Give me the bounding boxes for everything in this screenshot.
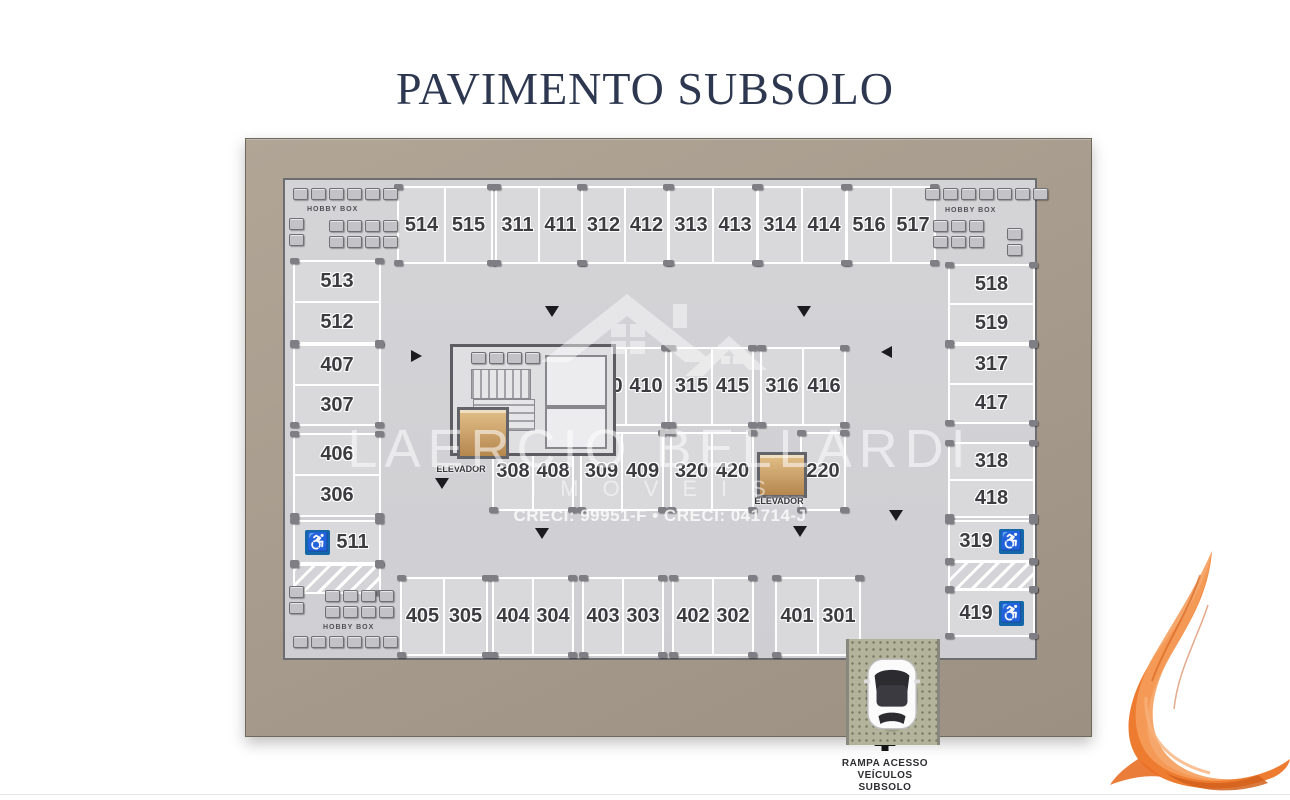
hobby-box-tags [329, 236, 398, 248]
stall-number: 405 [406, 605, 439, 628]
parking-stall: 314 [759, 188, 801, 262]
parking-stall: 405 [402, 579, 443, 654]
parking-stall: 513 [295, 262, 379, 301]
stall-number: 315 [675, 375, 708, 398]
parking-stall: 409 [621, 434, 662, 509]
parking-stall: 416 [802, 349, 844, 424]
stall-number: 514 [405, 214, 438, 237]
stall-number: 407 [320, 354, 353, 377]
stall-number: 302 [716, 605, 749, 628]
elevator-cab [757, 452, 807, 498]
parking-stall: 512 [295, 301, 379, 342]
parking-pair: 518 519 [948, 264, 1035, 344]
stair-landing [471, 369, 531, 399]
direction-arrow-icon [881, 346, 892, 358]
parking-stall: 313 [670, 188, 712, 262]
background-edge-line [0, 794, 1290, 795]
stall-number: 318 [975, 450, 1008, 473]
parking-pair: 316 416 [760, 347, 846, 426]
wheelchair-icon: ♿ [999, 529, 1024, 554]
parking-pair: 313 413 [668, 186, 758, 264]
parking-pair: 318 418 [948, 442, 1035, 518]
stall-number: 406 [320, 443, 353, 466]
stall-number: 408 [536, 460, 569, 483]
stall-number: 419 [959, 602, 992, 625]
parking-pair: 404 304 [492, 577, 574, 656]
direction-arrow-icon [797, 306, 811, 317]
stall-number: 418 [975, 487, 1008, 510]
direction-arrow-icon [793, 526, 807, 537]
stall-number: 411 [544, 214, 576, 237]
stall-number: 305 [449, 605, 482, 628]
hobby-box-tags [293, 188, 398, 200]
parking-stall: 406 [295, 435, 379, 474]
stall-number: 307 [320, 394, 353, 417]
parking-stall: 316 [762, 349, 802, 424]
ramp-caption-line: VEÍCULOS [815, 770, 955, 782]
stall-number: 314 [763, 214, 796, 237]
stall-number: 416 [807, 375, 840, 398]
stall-number: 312 [587, 214, 620, 237]
parking-stall: 304 [532, 579, 572, 654]
parking-stall: 315 [672, 349, 711, 424]
stall-number: 417 [975, 392, 1008, 415]
page: PAVIMENTO SUBSOLO 514 515 311 411 312 41… [0, 0, 1290, 800]
parking-stall: 403 [584, 579, 622, 654]
parking-stall: 303 [622, 579, 662, 654]
plan-interior: 514 515 311 411 312 412 313 413 314 414 … [283, 178, 1037, 660]
hobby-box-tags [289, 218, 304, 246]
stall-number: 415 [716, 375, 749, 398]
stall-number: 404 [496, 605, 529, 628]
wheelchair-icon: ♿ [999, 601, 1024, 626]
parking-stall: 516 [848, 188, 890, 262]
parking-stall: 312 [583, 188, 624, 262]
hobby-box-tags [925, 188, 1048, 200]
hobby-box-tags [329, 220, 398, 232]
hobby-box-tags [289, 586, 304, 614]
hobby-box-label: HOBBY BOX [945, 207, 996, 214]
parking-pair: 315 415 [670, 347, 754, 426]
direction-arrow-icon [411, 350, 422, 362]
stall-number: 513 [320, 270, 353, 293]
hobby-box-label: HOBBY BOX [307, 206, 358, 213]
parking-stall: 307 [295, 384, 379, 424]
stall-number: 414 [807, 214, 840, 237]
parking-stall: 311 [497, 188, 538, 262]
parking-stall: 410 [625, 349, 665, 424]
vehicle-ramp [846, 639, 940, 745]
stall-number: 220 [806, 460, 839, 483]
parking-stall: 519 [950, 303, 1033, 342]
stall-number: 409 [626, 460, 659, 483]
elevator-label: ELEVADOR [737, 496, 821, 506]
parking-pair: 403 303 [582, 577, 664, 656]
ramp-caption-line: SUBSOLO [815, 782, 955, 794]
parking-stall: 302 [712, 579, 752, 654]
ramp-caption: RAMPA ACESSO VEÍCULOS SUBSOLO [815, 737, 955, 794]
ramp-caption-line: RAMPA ACESSO [815, 758, 955, 770]
accessible-parking-stall: 419 ♿ [948, 589, 1035, 637]
parking-stall: 320 [672, 434, 711, 509]
elevator-cab [457, 407, 509, 459]
stall-number: 311 [501, 214, 533, 237]
parking-stall: 404 [494, 579, 532, 654]
orange-swoosh-decoration [1108, 545, 1290, 797]
parking-stall: 306 [295, 474, 379, 515]
parking-stall: 317 [950, 346, 1033, 383]
stall-number: 306 [320, 484, 353, 507]
stall-number: 309 [585, 460, 618, 483]
parking-stall: 318 [950, 444, 1033, 479]
stall-number: 402 [676, 605, 709, 628]
stall-number: 515 [452, 214, 485, 237]
parking-stall: 412 [624, 188, 667, 262]
parking-stall: 411 [538, 188, 581, 262]
parking-pair: 406 306 [293, 433, 381, 517]
direction-arrow-icon [535, 528, 549, 539]
parking-stall: 418 [950, 479, 1033, 516]
parking-stall: 415 [711, 349, 752, 424]
hobby-box-label: HOBBY BOX [323, 624, 374, 631]
stall-number: 512 [320, 311, 353, 334]
parking-stall: 305 [443, 579, 486, 654]
parking-stall: 417 [950, 383, 1033, 422]
car-top-view [863, 655, 921, 733]
direction-arrow-icon [435, 478, 449, 489]
machine-room [545, 355, 607, 407]
parking-pair: 514 515 [397, 186, 493, 264]
floor-plan: 514 515 311 411 312 412 313 413 314 414 … [245, 138, 1092, 737]
stall-number: 316 [765, 375, 798, 398]
stall-number: 320 [675, 460, 708, 483]
parking-stall: 414 [801, 188, 845, 262]
stall-number: 420 [716, 460, 749, 483]
stall-number: 412 [630, 214, 663, 237]
stall-number: 303 [626, 605, 659, 628]
parking-pair: 516 517 [846, 186, 936, 264]
hobby-box-tags [325, 606, 394, 618]
stall-number: 313 [674, 214, 707, 237]
no-parking-hatch [948, 561, 1035, 590]
parking-pair: 311 411 [495, 186, 583, 264]
parking-stall: 514 [399, 188, 444, 262]
stall-number: 401 [780, 605, 813, 628]
stall-number: 317 [975, 353, 1008, 376]
stall-number: 410 [629, 375, 662, 398]
stall-number: 319 [959, 530, 992, 553]
accessible-parking-stall: ♿ 511 [293, 520, 381, 564]
parking-pair: 314 414 [757, 186, 847, 264]
parking-pair: 402 302 [672, 577, 754, 656]
stall-number: 519 [975, 312, 1008, 335]
hobby-box-tags [471, 352, 540, 364]
stall-number: 516 [852, 214, 885, 237]
stall-number: 413 [718, 214, 751, 237]
hobby-box-tags [293, 636, 398, 648]
elevator-label: ELEVADOR [419, 464, 503, 474]
page-title: PAVIMENTO SUBSOLO [0, 62, 1290, 115]
stall-number: 304 [536, 605, 569, 628]
parking-stall: 401 [777, 579, 817, 654]
direction-arrow-icon [545, 306, 559, 317]
parking-pair: 513 512 [293, 260, 381, 344]
stall-number: 301 [822, 605, 855, 628]
machine-room [545, 407, 607, 449]
hobby-box-tags [325, 590, 394, 602]
parking-stall: 407 [295, 346, 379, 384]
stall-number: 518 [975, 273, 1008, 296]
wheelchair-icon: ♿ [305, 530, 330, 555]
parking-stall: 518 [950, 266, 1033, 303]
parking-stall: 413 [712, 188, 756, 262]
parking-pair: 405 305 [400, 577, 488, 656]
stall-number: 517 [896, 214, 929, 237]
hobby-box-tags [1007, 228, 1022, 256]
accessible-parking-stall: 319 ♿ [948, 520, 1035, 562]
parking-pair: 407 307 [293, 344, 381, 426]
parking-stall: 402 [674, 579, 712, 654]
parking-stall: 515 [444, 188, 491, 262]
parking-pair: 312 412 [581, 186, 669, 264]
direction-arrow-icon [889, 510, 903, 521]
hobby-box-tags [933, 236, 984, 248]
hobby-box-tags [933, 220, 984, 232]
stall-number: 511 [336, 531, 368, 554]
parking-pair: 317 417 [948, 344, 1035, 424]
stall-number: 403 [586, 605, 619, 628]
